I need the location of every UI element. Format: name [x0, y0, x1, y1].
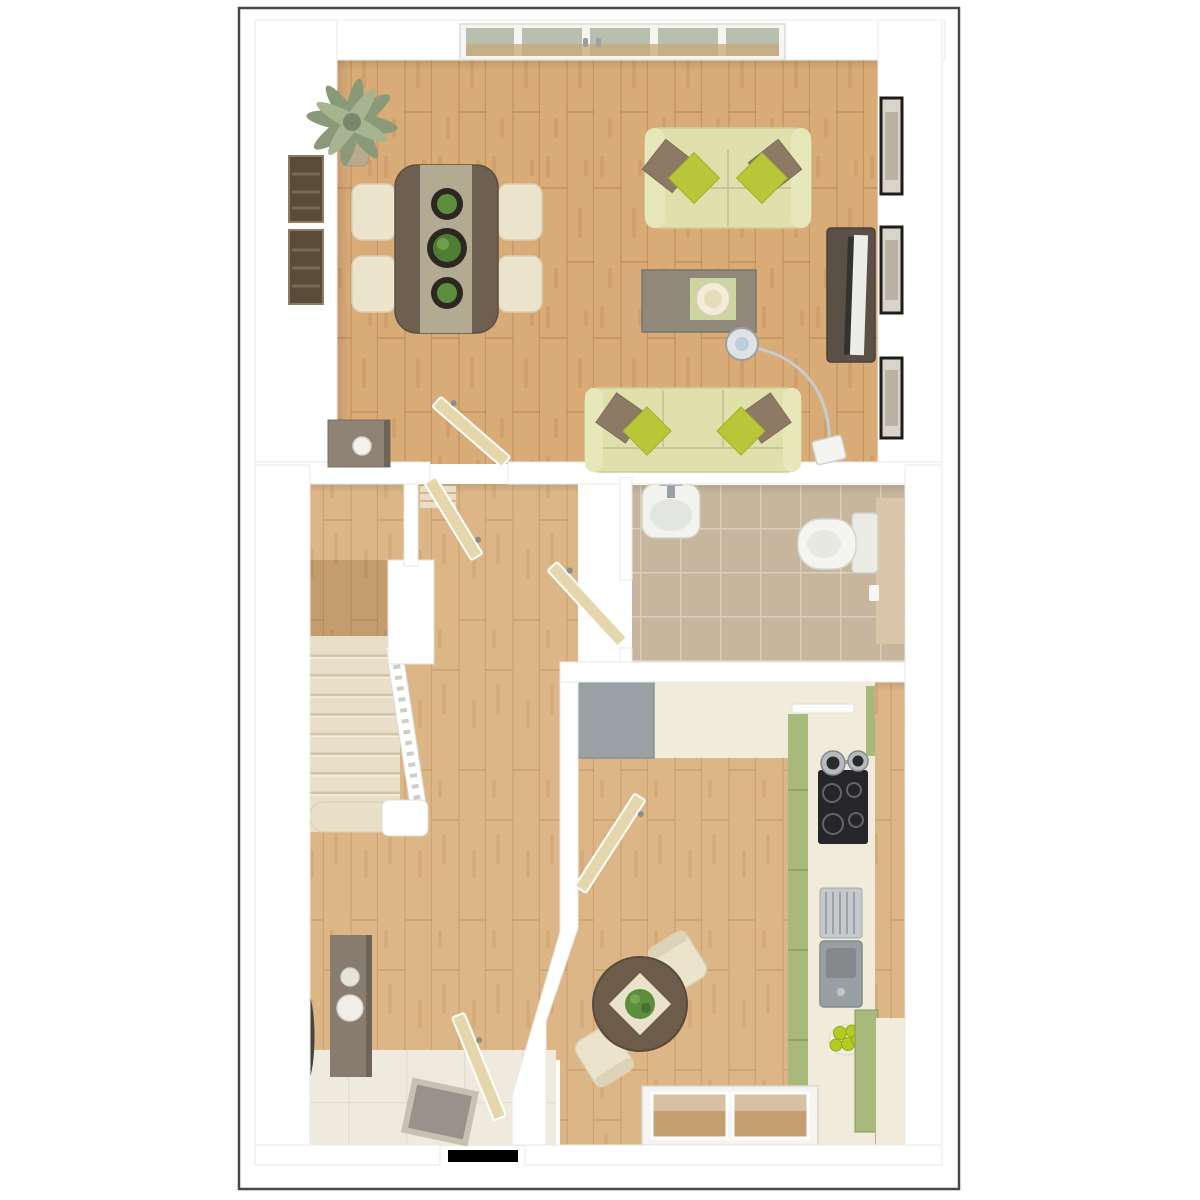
tv	[844, 235, 868, 356]
hob	[818, 770, 868, 844]
right-wall-lower	[905, 465, 942, 1165]
dining-chair	[498, 184, 542, 240]
floorplan-page	[0, 0, 1200, 1200]
two-seat-sofa	[642, 128, 811, 228]
coffee-table	[642, 270, 756, 332]
vase-icon	[337, 995, 363, 1021]
tall-unit-side	[876, 1018, 906, 1145]
tall-green-unit	[855, 1010, 878, 1132]
stair-top-shadow	[310, 560, 400, 636]
newel-post	[382, 800, 428, 836]
front-door-threshold	[448, 1150, 518, 1162]
console-cabinet	[330, 935, 372, 1077]
door-handle-icon	[583, 38, 588, 47]
bathroom-kitchen-wall	[560, 662, 905, 682]
three-seat-sofa	[585, 388, 801, 472]
extractor-shelf	[792, 704, 854, 713]
dining-chair	[352, 184, 396, 240]
vase-icon	[341, 968, 359, 986]
side-table	[328, 420, 390, 467]
corner-worktop	[578, 682, 654, 758]
toilet	[798, 513, 878, 573]
centerpiece-bowls	[427, 188, 467, 309]
floorplan-image	[0, 0, 1200, 1200]
kitchen-window	[642, 1086, 818, 1145]
french-doors	[460, 24, 785, 60]
picture-frames	[881, 98, 902, 438]
kitchen-cabinet-fronts	[788, 714, 808, 1140]
living-top-shadow	[337, 60, 878, 70]
dining-chair	[352, 256, 396, 312]
picture-inner	[885, 112, 898, 180]
door-handle-icon	[596, 38, 601, 47]
plant-centerpiece	[625, 989, 655, 1019]
sofa-arm	[783, 388, 801, 472]
green-wall-strip	[866, 686, 875, 756]
washbasin	[642, 480, 700, 538]
left-wall-hall	[255, 465, 310, 1165]
table-lamp-icon	[353, 437, 371, 455]
wall-art	[289, 156, 323, 304]
picture-inner	[885, 370, 898, 426]
flush-plate	[869, 585, 879, 601]
bathroom-left-wall-upper	[620, 478, 632, 580]
glass-panels	[466, 28, 779, 56]
kitchen-sink	[820, 941, 862, 1007]
stair-bulkhead	[388, 560, 434, 664]
bottom-wall-left	[255, 1145, 440, 1165]
picture-inner	[885, 240, 898, 300]
saucepan-icon	[848, 751, 868, 771]
sofa-arm	[791, 128, 811, 228]
sofa-arm	[585, 388, 603, 472]
bottom-wall-right	[525, 1145, 942, 1165]
drainer	[820, 888, 862, 938]
bath-side-panel	[876, 498, 904, 644]
dining-chair	[498, 256, 542, 312]
tv-unit	[827, 228, 875, 362]
hall-wall-stub	[404, 484, 418, 566]
